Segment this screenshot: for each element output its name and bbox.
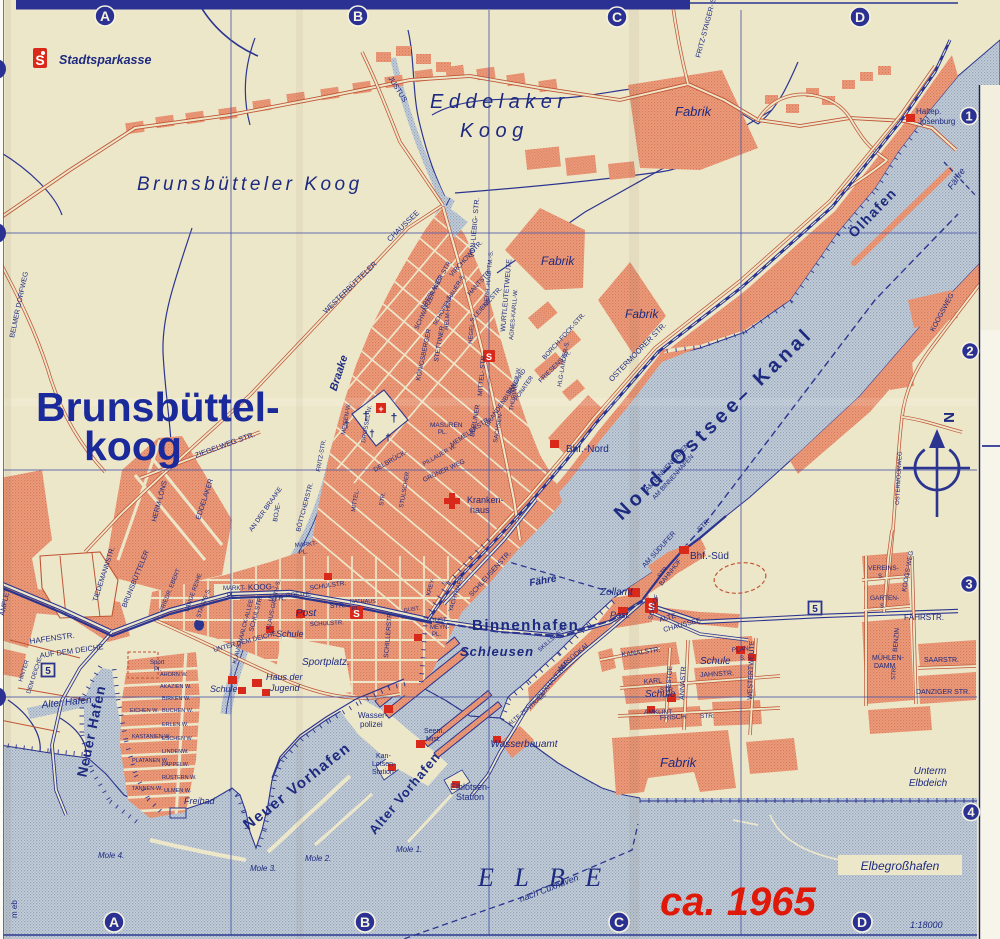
- svg-text:PL.: PL.: [352, 606, 361, 612]
- svg-text:Elblotsen-: Elblotsen-: [450, 782, 490, 792]
- svg-text:PAPPELW.: PAPPELW.: [162, 762, 189, 768]
- svg-text:MEYN-: MEYN-: [430, 625, 449, 631]
- svg-text:Wasser-: Wasser-: [358, 711, 388, 720]
- svg-text:Schule: Schule: [700, 656, 731, 667]
- svg-text:ca. 1965: ca. 1965: [660, 880, 816, 924]
- svg-text:Station: Station: [456, 792, 484, 802]
- svg-text:GARTEN-: GARTEN-: [870, 595, 899, 602]
- svg-text:LINDENW.: LINDENW.: [162, 749, 189, 755]
- svg-text:Haus der: Haus der: [266, 672, 304, 682]
- svg-text:A: A: [109, 914, 119, 930]
- svg-text:BUCHEN W.: BUCHEN W.: [162, 708, 194, 714]
- svg-text:4: 4: [967, 805, 975, 820]
- svg-text:5: 5: [45, 666, 51, 677]
- svg-text:Seem.: Seem.: [424, 728, 444, 735]
- svg-text:Elbegroßhafen: Elbegroßhafen: [861, 859, 940, 873]
- svg-text:DANZIGER STR.: DANZIGER STR.: [916, 689, 970, 696]
- svg-text:Brunsbütteler Koog: Brunsbütteler Koog: [137, 174, 363, 195]
- svg-text:3: 3: [965, 577, 972, 592]
- svg-text:†: †: [369, 429, 375, 440]
- svg-text:MASUREN: MASUREN: [430, 422, 463, 429]
- svg-text:RATHAUS: RATHAUS: [350, 599, 376, 605]
- svg-text:ERLEN W.: ERLEN W.: [162, 722, 189, 728]
- svg-text:Freibad: Freibad: [184, 796, 216, 806]
- svg-text:MÜHLEN-: MÜHLEN-: [872, 654, 905, 662]
- svg-text:Station: Station: [372, 769, 394, 776]
- svg-text:Sport: Sport: [150, 660, 165, 666]
- svg-text:m eb: m eb: [10, 900, 19, 918]
- svg-text:Haltep.: Haltep.: [916, 107, 941, 116]
- svg-text:EICHEN W.: EICHEN W.: [130, 708, 159, 714]
- svg-text:Post.: Post.: [610, 610, 631, 620]
- svg-text:Bhf.-Süd: Bhf.-Süd: [690, 551, 729, 562]
- svg-text:Mole 1.: Mole 1.: [396, 845, 422, 854]
- svg-text:Kan-: Kan-: [376, 753, 391, 760]
- svg-text:PL.: PL.: [432, 632, 441, 638]
- svg-text:S.: S.: [740, 656, 746, 662]
- svg-text:Mole 3.: Mole 3.: [250, 864, 276, 873]
- svg-text:haus: haus: [470, 505, 490, 515]
- svg-text:AKAZIEN W.: AKAZIEN W.: [160, 684, 192, 690]
- svg-text:S.: S.: [880, 604, 886, 610]
- svg-text:GUST-: GUST-: [430, 618, 448, 624]
- svg-text:MARKT-: MARKT-: [223, 586, 246, 592]
- svg-text:FRISCH: FRISCH: [660, 714, 686, 722]
- svg-text:PL.: PL.: [227, 593, 236, 599]
- svg-text:D: D: [857, 914, 867, 930]
- svg-text:Schleusen: Schleusen: [460, 644, 534, 659]
- svg-text:Unterm: Unterm: [914, 766, 947, 777]
- svg-text:Josenburg: Josenburg: [918, 117, 955, 126]
- svg-text:Sportplatz.: Sportplatz.: [302, 657, 350, 668]
- svg-text:1:18000: 1:18000: [910, 920, 943, 930]
- svg-text:C: C: [614, 914, 624, 930]
- svg-text:A: A: [100, 8, 110, 24]
- svg-text:STR.: STR.: [330, 602, 346, 610]
- svg-text:†: †: [391, 411, 398, 425]
- svg-text:Mole 4.: Mole 4.: [98, 851, 124, 860]
- svg-text:Elbdeich: Elbdeich: [909, 778, 948, 789]
- svg-text:†: †: [385, 433, 391, 444]
- svg-text:STR.: STR.: [700, 713, 715, 720]
- svg-text:Jugend: Jugend: [269, 683, 301, 693]
- svg-text:B: B: [360, 914, 370, 930]
- svg-text:BIRKEN W.: BIRKEN W.: [162, 696, 191, 702]
- svg-text:S.: S.: [878, 574, 884, 580]
- svg-text:Stadtsparkasse: Stadtsparkasse: [59, 53, 151, 67]
- svg-text:1: 1: [965, 109, 972, 124]
- svg-text:Wasserbauamt: Wasserbauamt: [490, 739, 558, 750]
- svg-text:AHORN W.: AHORN W.: [160, 672, 188, 678]
- svg-text:VEREINS-: VEREINS-: [868, 565, 899, 572]
- svg-text:ULMEN W.: ULMEN W.: [164, 788, 192, 794]
- svg-text:KOOG-: KOOG-: [248, 582, 275, 592]
- svg-text:Bhf.-Nord: Bhf.-Nord: [566, 444, 609, 455]
- svg-text:Fabrik: Fabrik: [660, 755, 698, 770]
- svg-text:Schule: Schule: [210, 684, 238, 694]
- svg-text:polizei: polizei: [360, 720, 383, 729]
- svg-text:Kranken-: Kranken-: [467, 495, 504, 505]
- svg-text:+: +: [378, 404, 383, 414]
- svg-text:Schule: Schule: [276, 629, 304, 639]
- svg-text:B: B: [353, 8, 363, 24]
- svg-text:FÄHRSTR.: FÄHRSTR.: [904, 613, 944, 622]
- svg-text:TANNEN-W.: TANNEN-W.: [132, 786, 163, 792]
- svg-text:ESCHEN W.: ESCHEN W.: [162, 736, 193, 742]
- svg-text:PL.: PL.: [299, 549, 309, 556]
- svg-text:N: N: [940, 412, 957, 423]
- svg-text:Fabrik: Fabrik: [675, 104, 713, 119]
- svg-text:SAARSTR.: SAARSTR.: [924, 657, 959, 664]
- svg-text:Eddelaker: Eddelaker: [430, 91, 570, 113]
- svg-text:Mole 2.: Mole 2.: [305, 854, 331, 863]
- svg-text:RÜSTERN W.: RÜSTERN W.: [162, 774, 197, 781]
- svg-text:STR.: STR.: [891, 666, 898, 680]
- svg-text:PL.: PL.: [438, 430, 447, 436]
- svg-text:Koog: Koog: [460, 120, 529, 142]
- svg-text:Fabrik: Fabrik: [541, 254, 575, 268]
- svg-text:C: C: [612, 9, 622, 25]
- svg-text:Pl.: Pl.: [154, 667, 161, 673]
- svg-text:Mist.: Mist.: [426, 736, 441, 743]
- svg-text:Fabrik: Fabrik: [625, 307, 659, 321]
- svg-text:Zollamt: Zollamt: [599, 587, 634, 598]
- svg-text:2: 2: [966, 344, 973, 359]
- svg-text:D: D: [855, 9, 865, 25]
- svg-text:Post: Post: [296, 608, 317, 619]
- svg-text:5: 5: [812, 604, 818, 615]
- svg-text:koog: koog: [84, 423, 182, 469]
- svg-text:Lotsen-: Lotsen-: [372, 761, 396, 768]
